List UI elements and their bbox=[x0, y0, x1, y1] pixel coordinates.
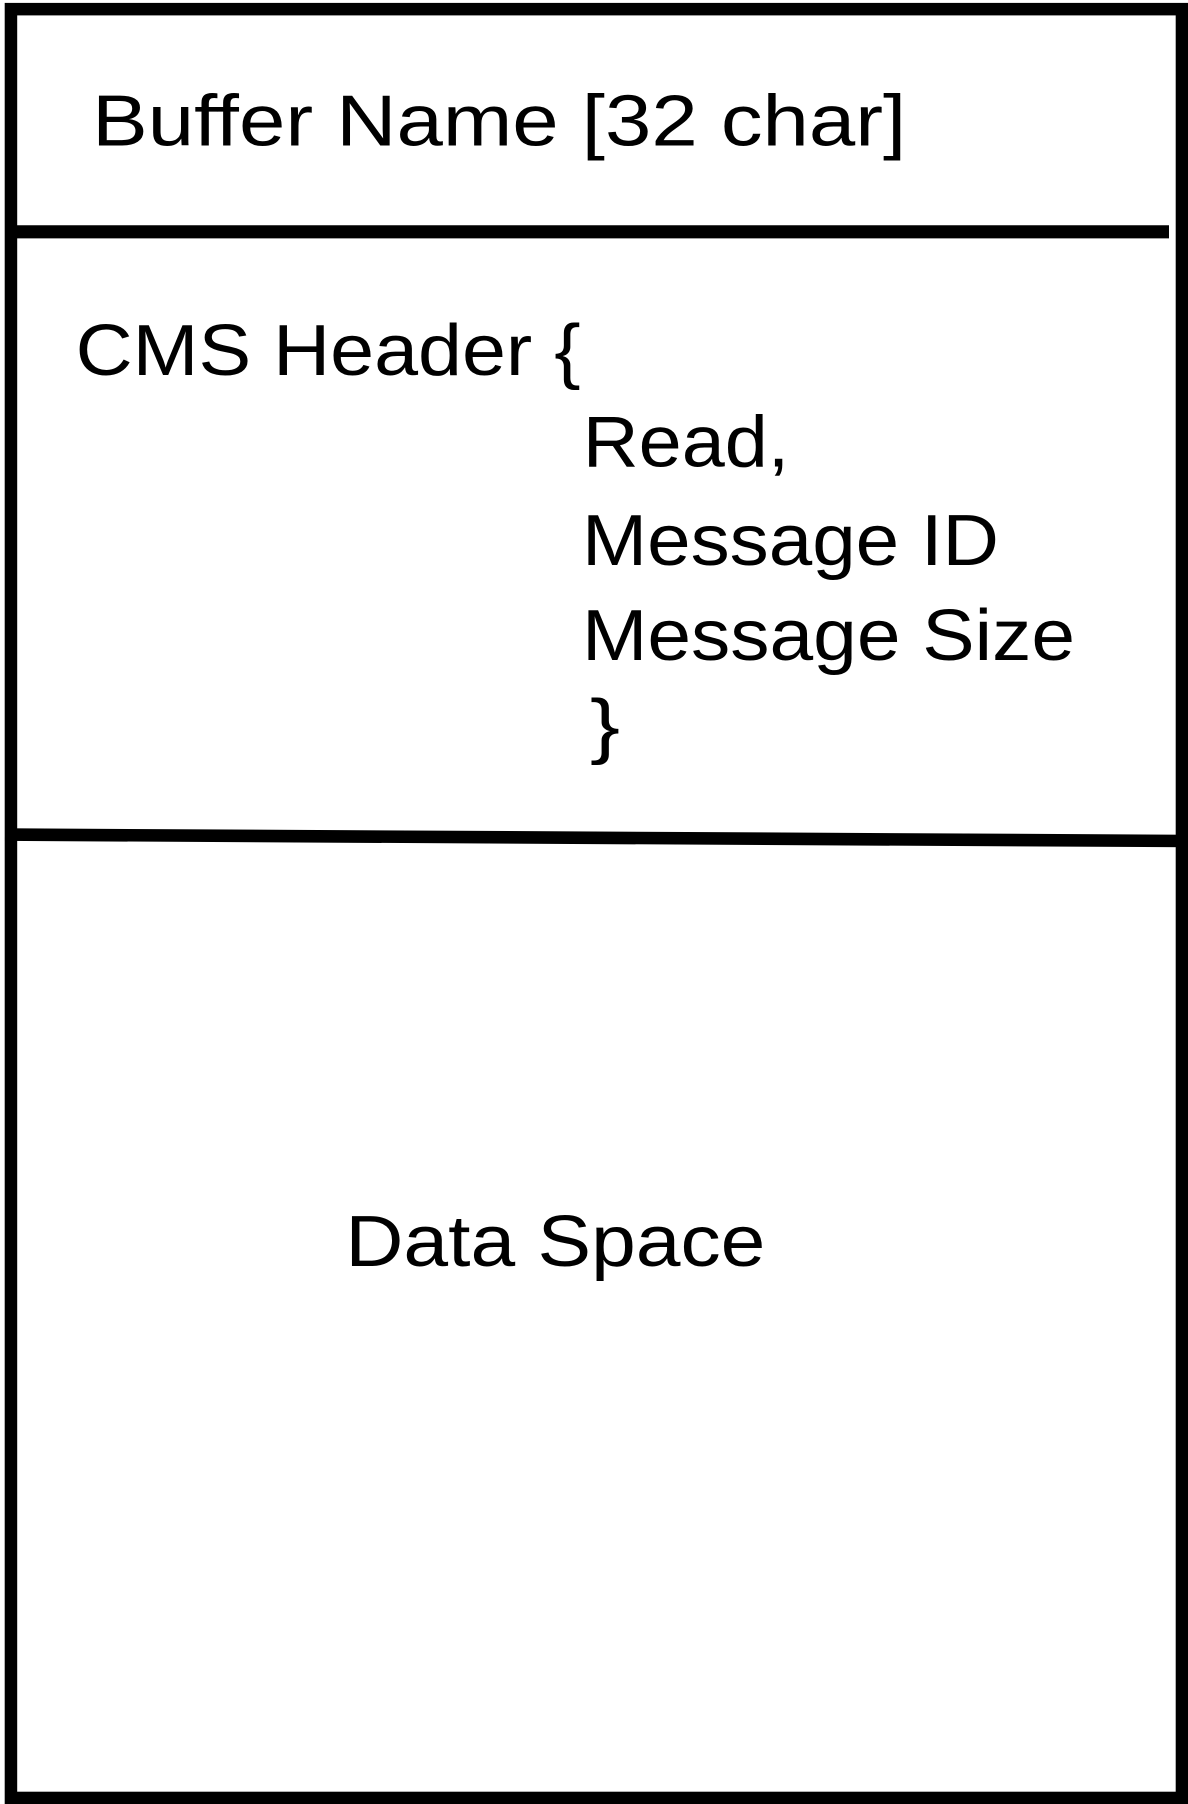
svg-text:}: } bbox=[590, 686, 620, 766]
svg-text:Message Size: Message Size bbox=[582, 596, 1075, 676]
svg-text:CMS Header {: CMS Header { bbox=[76, 311, 581, 391]
svg-text:Data Space: Data Space bbox=[345, 1202, 765, 1282]
svg-text:Buffer Name [32 char]: Buffer Name [32 char] bbox=[92, 82, 906, 162]
svg-text:Read,: Read, bbox=[583, 403, 790, 483]
svg-text:Message ID: Message ID bbox=[582, 501, 999, 581]
